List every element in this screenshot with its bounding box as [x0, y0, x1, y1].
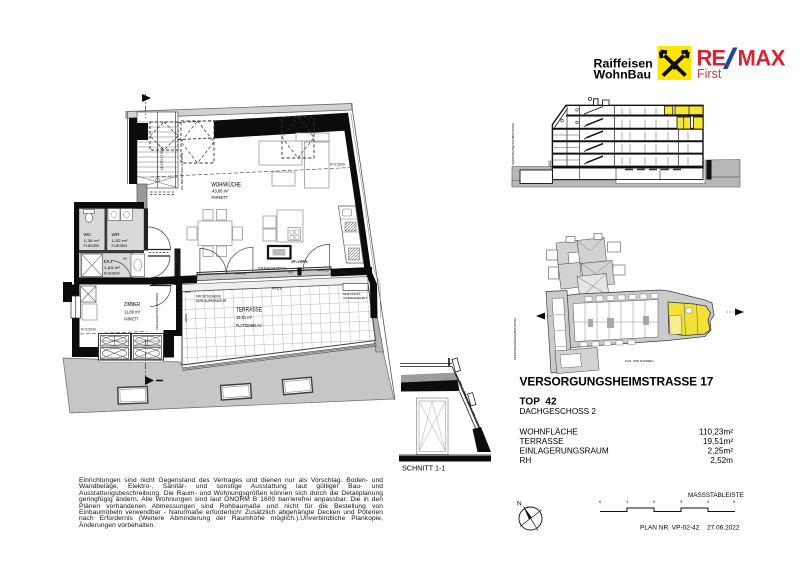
svg-text:DU: DU	[104, 259, 112, 264]
svg-text:OK- BRÜSTUNG H=110CM: OK- BRÜSTUNG H=110CM	[180, 152, 184, 190]
svg-text:27.06.2022: 27.06.2022	[707, 525, 740, 532]
svg-text:RH: RH	[520, 456, 532, 465]
svg-text:SCHNITT 1-1: SCHNITT 1-1	[402, 464, 445, 473]
svg-text:ZIMMER: ZIMMER	[124, 302, 140, 308]
svg-text:FPH=15: FPH=15	[234, 272, 246, 276]
svg-text:1: 1	[626, 499, 629, 504]
svg-text:TERRASSE: TERRASSE	[236, 307, 262, 314]
svg-text:16 STG 17,5/28: 16 STG 17,5/28	[160, 147, 164, 170]
svg-text:FLIESEN: FLIESEN	[104, 271, 120, 276]
svg-text:110,23m²: 110,23m²	[699, 428, 733, 437]
svg-text:43,80 m²: 43,80 m²	[212, 189, 229, 195]
svg-text:VERSORGUNGSHEIMSTRASSE: VERSORGUNGSHEIMSTRASSE	[511, 123, 515, 165]
svg-text:VORLEGESTUFE OPTIONAL: VORLEGESTUFE OPTIONAL	[258, 266, 287, 270]
svg-text:PARKETT: PARKETT	[124, 317, 139, 322]
svg-text:VERSORGUNGSHEIMSTRASSE: VERSORGUNGSHEIMSTRASSE	[513, 318, 517, 360]
svg-text:1,83 m²: 1,83 m²	[104, 265, 121, 270]
svg-text:OK -2,68/3: OK -2,68/3	[292, 259, 307, 263]
svg-text:11,80 m²: 11,80 m²	[124, 310, 140, 315]
svg-text:WohnBau: WohnBau	[594, 67, 652, 81]
svg-text:WR: WR	[112, 232, 120, 237]
svg-text:TOP 42: TOP 42	[520, 397, 557, 408]
svg-text:WC: WC	[84, 232, 92, 237]
svg-text:LWS: LWS	[185, 290, 191, 294]
svg-text:19,51 m²: 19,51 m²	[236, 315, 252, 321]
svg-text:RIGOL: RIGOL	[272, 287, 283, 291]
svg-text:MAX: MAX	[738, 46, 786, 71]
svg-text:FLIESEN: FLIESEN	[112, 243, 128, 248]
svg-text:WOHNKÜCHE: WOHNKÜCHE	[212, 181, 242, 189]
svg-text:5: 5	[733, 499, 736, 504]
svg-text:EINLAGERUNGSRAUM: EINLAGERUNGSRAUM	[520, 447, 609, 456]
svg-text:UP-VERTEILER: UP-VERTEILER	[175, 264, 179, 284]
svg-text:h=2,52m: h=2,52m	[330, 163, 345, 167]
svg-text:AUSLAUFARMATUR: AUSLAUFARMATUR	[196, 299, 227, 303]
svg-text:TERRASSE: TERRASSE	[520, 437, 565, 446]
svg-text:2,52m: 2,52m	[710, 456, 733, 465]
svg-text:WOHNFLÄCHE: WOHNFLÄCHE	[520, 427, 579, 437]
svg-text:FPH=15: FPH=15	[318, 269, 329, 273]
svg-text:AUSSENEINHEIT: AUSSENEINHEIT	[343, 296, 367, 300]
svg-text:PLAN NR. VP-02-42: PLAN NR. VP-02-42	[640, 525, 700, 532]
svg-text:PARKETT: PARKETT	[212, 195, 229, 200]
svg-text:MASSSTABLEISTE: MASSSTABLEISTE	[688, 492, 744, 499]
svg-text:FROSTSICHERE: FROSTSICHERE	[196, 295, 221, 299]
svg-text:FIX: FIX	[289, 271, 294, 275]
svg-text:FUS- UND RADWEG: FUS- UND RADWEG	[625, 359, 654, 363]
svg-text:4: 4	[707, 499, 710, 504]
svg-text:2: 2	[653, 499, 656, 504]
svg-text:2,25m²: 2,25m²	[708, 447, 734, 456]
svg-text:N: N	[517, 501, 522, 508]
svg-text:3: 3	[680, 499, 683, 504]
svg-text:HK: HK	[123, 257, 127, 261]
svg-text:PLATTENBELAG: PLATTENBELAG	[236, 323, 262, 328]
svg-text:FLIESEN: FLIESEN	[84, 243, 100, 248]
svg-text:RIGOL: RIGOL	[184, 313, 188, 322]
svg-text:h=2,52m: h=2,52m	[81, 328, 96, 332]
svg-text:DACHGESCHOSS 2: DACHGESCHOSS 2	[520, 407, 597, 416]
svg-text:VORLEGESTUFE OPTIONAL: VORLEGESTUFE OPTIONAL	[155, 292, 159, 330]
svg-text:0: 0	[599, 499, 602, 504]
svg-text:VERSORGUNGSHEIMSTRASSE 17: VERSORGUNGSHEIMSTRASSE 17	[520, 375, 714, 389]
svg-text:First: First	[697, 67, 722, 81]
svg-text:19,51m²: 19,51m²	[703, 437, 733, 446]
